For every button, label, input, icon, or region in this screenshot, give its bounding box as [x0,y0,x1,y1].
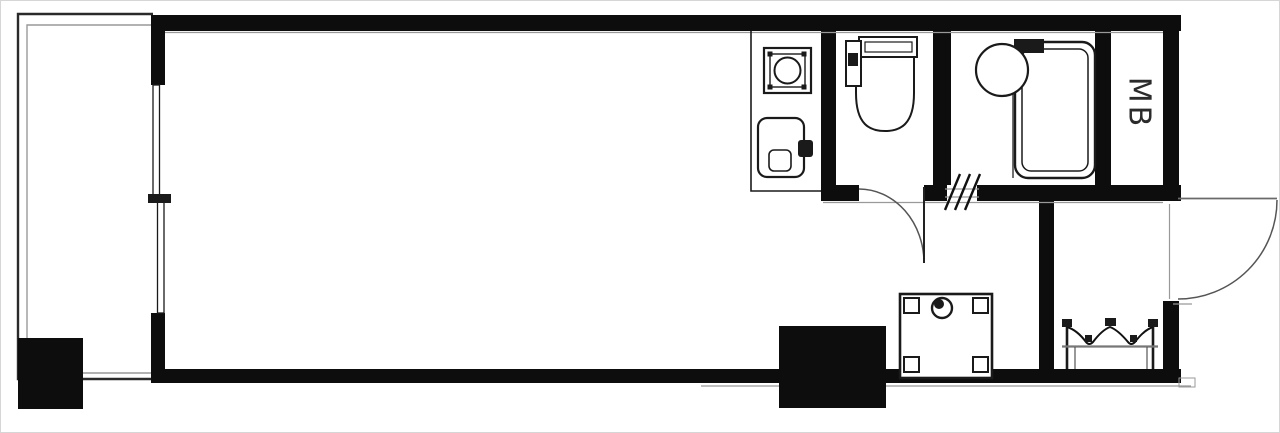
shoe-cabinet-scallop [1067,327,1153,344]
kitchen [751,31,821,191]
shoe-cabinet [1062,318,1158,369]
wall-entrance-left [1039,198,1054,369]
wall-right-lower [1163,301,1179,381]
toilet-room [846,37,924,263]
washing-machine-area [900,294,992,378]
toilet-flush-handle [848,53,858,66]
sliding-window [148,85,171,313]
wall-bottom [151,369,1181,383]
pillar-southwest [18,338,83,409]
wall-toilet-bath [933,31,951,185]
balcony-inner-railing [27,25,153,373]
toilet-bowl [856,51,914,131]
window-pane-upper [153,85,160,199]
wall-south-of-bath-left [924,185,947,201]
wall-left-upper [151,15,165,85]
meter-box-label: MB [1122,77,1157,129]
pillars [18,326,886,409]
kitchen-sink [758,118,804,177]
scallop-dot-left [1085,335,1092,342]
window-center-lock [148,194,171,203]
washer-drain-cap [934,299,944,309]
washbasin [976,44,1028,96]
balcony [18,14,153,379]
balcony-outer-railing [18,14,153,379]
wall-right-upper [1163,15,1179,199]
sink-faucet-icon [798,140,813,157]
wall-left-lower [151,313,165,381]
stove-tick-bl [768,85,773,90]
stove-tick-tl [768,52,773,57]
bathroom [945,39,1095,210]
stove-tick-tr [802,52,807,57]
pillar-south [779,326,886,408]
washer-pan [900,294,992,378]
meter-box: MB [1122,77,1157,129]
wall-top [151,15,1181,31]
toilet-door-swing-arc [859,189,924,263]
scallop-cap-mid [1105,318,1116,326]
wall-south-of-toilet [821,185,859,201]
floor-plan: MB [0,0,1280,433]
scallop-cap-left [1062,319,1072,327]
scallop-dot-right [1130,335,1137,342]
entrance-door-swing-arc [1178,200,1277,299]
wall-south-of-bath-right [977,185,1181,201]
wall-bath-meterbox [1095,31,1111,185]
window-pane-lower [158,199,165,313]
scallop-cap-right [1148,319,1158,327]
stove-tick-br [802,85,807,90]
wall-kitchen-toilet [821,31,836,187]
toilet-tank [859,37,917,57]
